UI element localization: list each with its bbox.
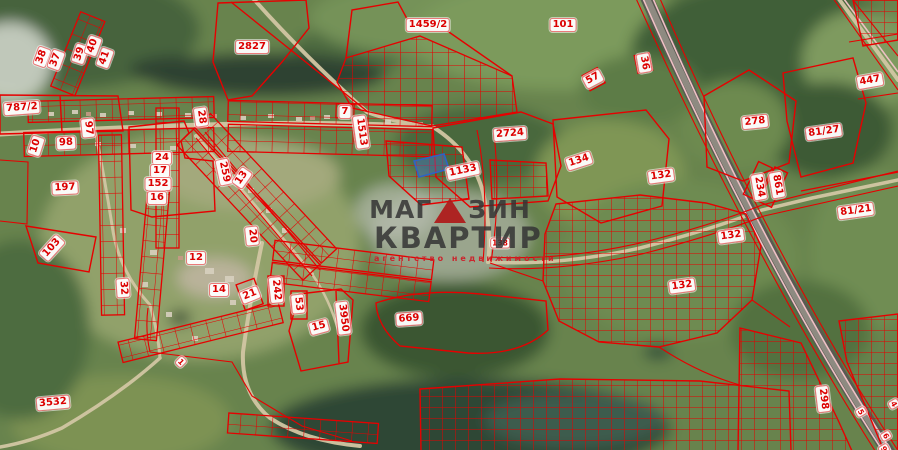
parcel-label[interactable]: 13	[231, 166, 254, 190]
logo-triangle-icon	[434, 198, 466, 223]
parcel-label[interactable]: 32	[115, 278, 130, 299]
parcel-label[interactable]: 7	[339, 105, 352, 119]
parcel-label[interactable]: 6	[879, 429, 893, 442]
parcel-label[interactable]: 1459/2	[406, 18, 450, 32]
watermark-logo: МАГ ЗИН КВАРТИР агентство недвижимости	[374, 197, 526, 263]
parcel-label[interactable]: 15	[308, 318, 331, 337]
watermark-text-right: ЗИН	[468, 197, 531, 223]
parcel-label[interactable]: 134	[564, 150, 594, 172]
parcel-label[interactable]: 5	[854, 405, 868, 418]
watermark-brand-top: МАГ ЗИН	[374, 197, 526, 223]
parcel-label[interactable]: 9	[877, 442, 891, 450]
parcel-label[interactable]: 16	[147, 191, 167, 205]
parcel-label[interactable]: 2724	[493, 126, 528, 142]
parcel-label[interactable]: 1	[174, 355, 188, 369]
parcel-label[interactable]: 1513	[352, 114, 371, 149]
parcel-label[interactable]: 17	[150, 164, 170, 178]
parcel-label[interactable]: 21	[238, 285, 262, 305]
parcel-label[interactable]: 234	[750, 173, 768, 202]
parcel-label[interactable]: 28	[193, 106, 210, 128]
parcel-label[interactable]: 3532	[36, 395, 71, 412]
parcel-label[interactable]: 278	[741, 114, 769, 131]
parcel-label[interactable]: 10	[26, 134, 45, 157]
parcel-label[interactable]: 97	[80, 117, 96, 138]
parcel-label[interactable]: 101	[550, 18, 577, 32]
parcel-label[interactable]: 12	[186, 251, 206, 265]
parcel-label[interactable]: 4	[887, 397, 898, 410]
parcel-label[interactable]: 3950	[334, 300, 352, 335]
watermark-brand-bottom: КВАРТИР	[374, 223, 526, 253]
parcel-label[interactable]: 20	[244, 225, 260, 246]
parcel-label[interactable]: 1133	[445, 161, 481, 182]
parcel-label[interactable]: 861	[768, 171, 786, 200]
watermark-tagline: агентство недвижимости	[374, 254, 526, 263]
parcel-label[interactable]: 152	[145, 177, 172, 191]
parcel-label[interactable]: 53	[290, 293, 306, 314]
parcel-label[interactable]: 36	[635, 52, 652, 74]
parcel-label[interactable]: 14	[209, 283, 229, 297]
parcel-label[interactable]: 132	[647, 167, 676, 185]
parcel-label[interactable]: 447	[856, 72, 885, 90]
parcel-label[interactable]: 669	[395, 311, 423, 327]
watermark-text-left: МАГ	[369, 197, 432, 223]
parcel-label[interactable]: 57	[581, 68, 605, 90]
parcel-label[interactable]: 242	[268, 276, 285, 304]
map-viewport[interactable]: 3837394041787/29710981972417152161032812…	[0, 0, 898, 450]
parcel-label[interactable]: 81/27	[804, 122, 843, 141]
parcel-label[interactable]: 81/21	[836, 201, 875, 220]
parcel-label[interactable]: 787/2	[3, 100, 41, 117]
parcel-label[interactable]: 298	[814, 385, 831, 413]
parcel-label[interactable]: 103	[38, 233, 66, 262]
parcel-label[interactable]: 2827	[235, 40, 269, 54]
parcel-label[interactable]: 132	[717, 227, 746, 245]
parcel-label[interactable]: 24	[152, 151, 172, 165]
parcel-label[interactable]: 197	[51, 180, 79, 195]
parcel-label[interactable]: 132	[668, 277, 697, 295]
parcel-label[interactable]: 98	[56, 135, 77, 150]
